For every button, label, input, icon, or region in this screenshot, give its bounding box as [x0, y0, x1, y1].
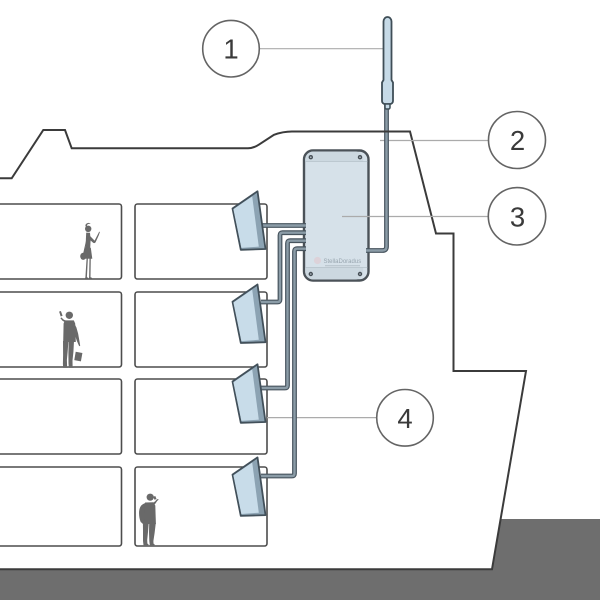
svg-text:StellaDoradus: StellaDoradus	[324, 259, 362, 265]
svg-text:4: 4	[397, 403, 412, 434]
svg-text:2: 2	[510, 125, 525, 156]
svg-text:1: 1	[223, 34, 238, 65]
svg-text:3: 3	[510, 201, 525, 232]
